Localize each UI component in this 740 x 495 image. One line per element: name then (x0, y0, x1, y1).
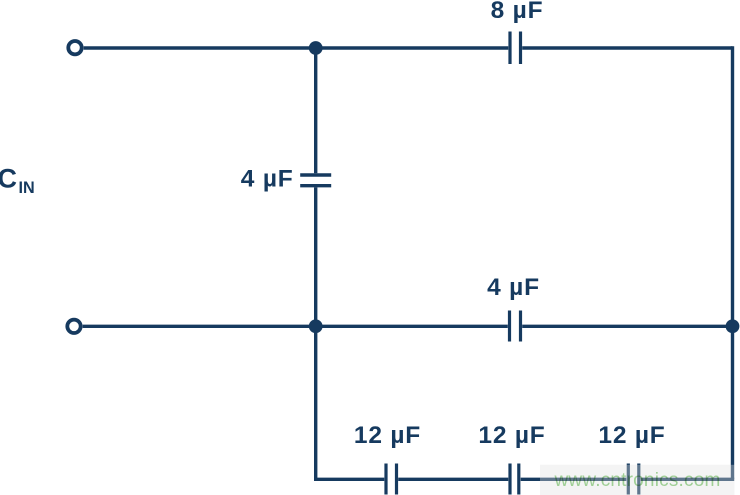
svg-text:8 µF: 8 µF (491, 0, 544, 24)
svg-text:CIN: CIN (0, 164, 35, 198)
svg-text:4 µF: 4 µF (241, 165, 294, 192)
svg-text:12 µF: 12 µF (478, 422, 545, 449)
svg-text:www.cntronics.com: www.cntronics.com (554, 470, 721, 491)
svg-text:4 µF: 4 µF (487, 274, 540, 301)
svg-text:12 µF: 12 µF (598, 422, 665, 449)
svg-text:12 µF: 12 µF (354, 422, 421, 449)
